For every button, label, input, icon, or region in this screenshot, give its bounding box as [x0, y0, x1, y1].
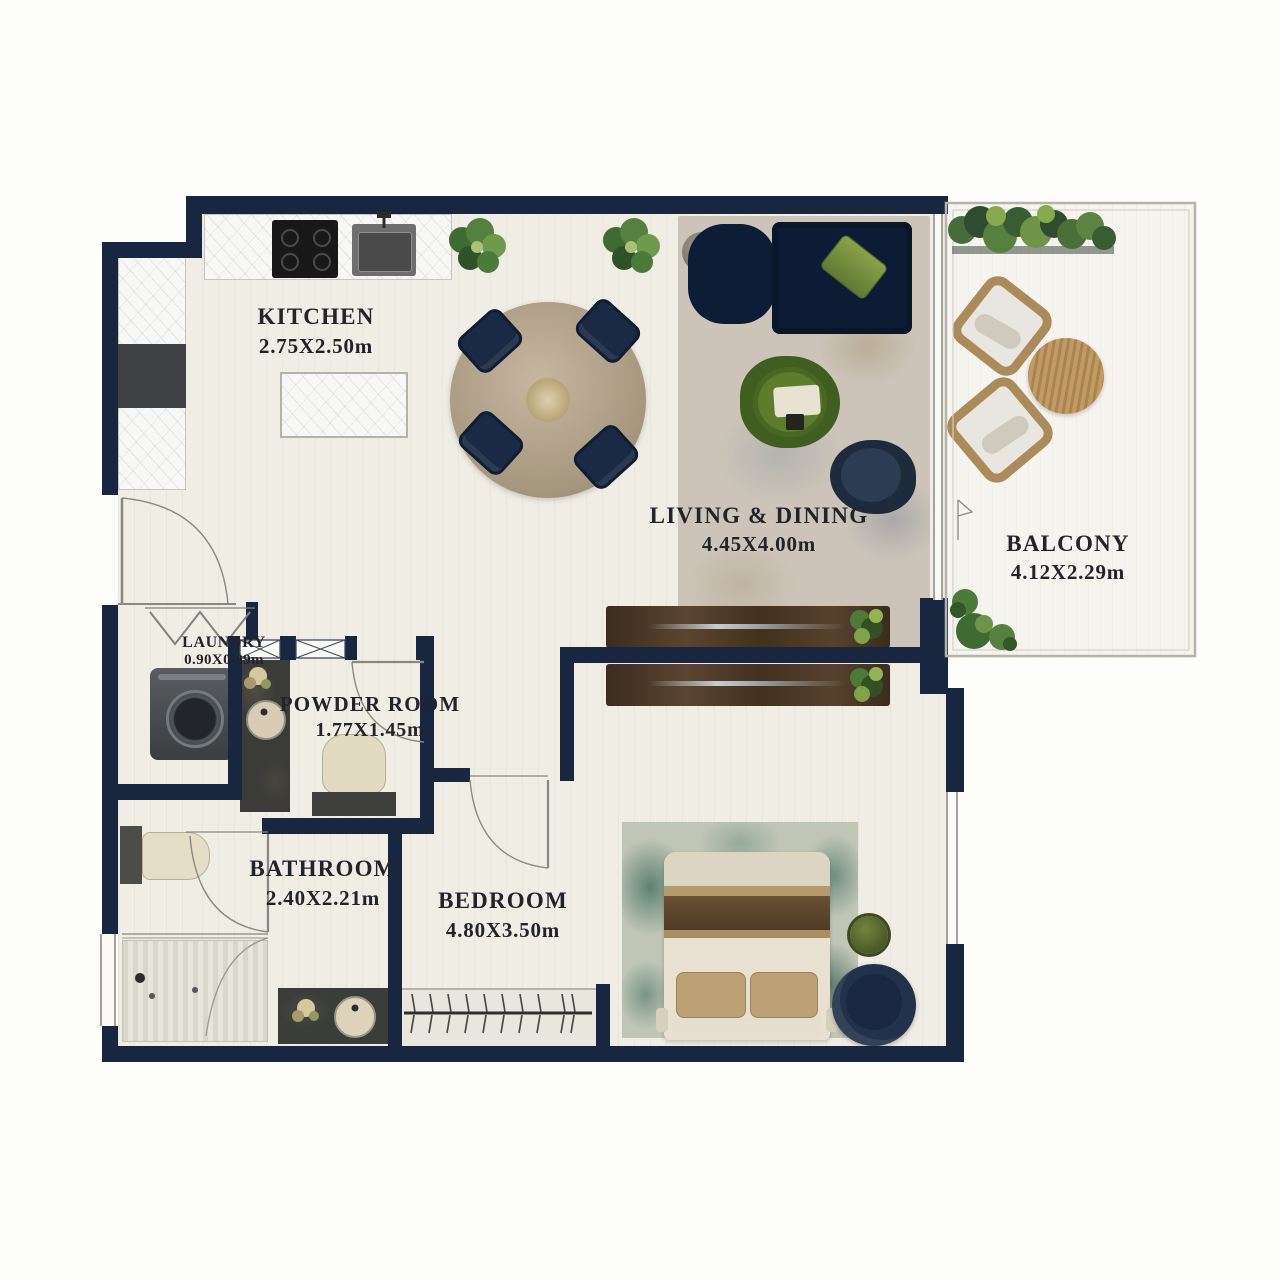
outdoor-table: [1028, 338, 1104, 414]
bed-pillow: [676, 972, 746, 1018]
wall-left-mid: [102, 605, 118, 934]
bed-foot: [672, 1018, 822, 1036]
toilet-tank: [120, 826, 142, 884]
bed-runner-edge: [664, 886, 830, 896]
window-bedroom: [946, 792, 958, 944]
room-label-kitchen: KITCHEN: [257, 304, 374, 330]
bedside-table: [850, 916, 888, 954]
tray-item: [786, 414, 804, 430]
console-table: [606, 606, 890, 648]
room-dims-laundry: 0.90X0.89m: [184, 652, 264, 669]
room-label-powder: POWDER ROOM: [280, 692, 461, 717]
bed: [664, 852, 830, 1040]
wall-living-bedroom: [560, 647, 924, 663]
swivel-seat: [846, 974, 902, 1030]
washing-machine: [150, 668, 234, 760]
fridge: [118, 344, 186, 408]
wall-bathroom-right: [388, 818, 402, 1046]
wall-bottom: [102, 1046, 964, 1062]
washer-panel: [158, 674, 226, 680]
bed-head: [664, 852, 830, 886]
kitchen-island: [280, 372, 408, 438]
bed-leg: [656, 1008, 668, 1032]
room-label-balcony: BALCONY: [1006, 531, 1129, 557]
outdoor-cushion: [971, 310, 1024, 352]
bed-runner: [664, 896, 830, 930]
wall-laundry-bottom: [102, 784, 242, 800]
wall-powder-right: [420, 655, 434, 834]
wall-right-lower: [946, 944, 964, 1062]
sofa-chaise: [688, 224, 776, 324]
wardrobe: [402, 988, 596, 1046]
room-dims-powder: 1.77X1.45m: [315, 719, 424, 742]
wall-corner-living: [920, 598, 948, 694]
wall-top: [186, 196, 948, 214]
room-dims-balcony: 4.12X2.29m: [1011, 560, 1125, 585]
wall-hallway: [560, 647, 574, 781]
console-table: [606, 664, 890, 706]
room-label-living: LIVING & DINING: [650, 503, 869, 529]
room-dims-bathroom: 2.40X2.21m: [266, 886, 380, 911]
washer-drum: [166, 690, 224, 748]
armchair-cushion: [841, 448, 901, 502]
wall-left-upper: [102, 242, 118, 495]
powder-toilet: [322, 734, 386, 794]
floor-plan: KITCHEN 2.75X2.50m LIVING & DINING 4.45X…: [0, 0, 1280, 1280]
swivel-chair: [832, 964, 916, 1046]
window-bathroom: [100, 934, 116, 1026]
powder-toilet-tank: [312, 792, 396, 816]
wall-right-mid: [946, 688, 964, 792]
dining-centerpiece: [526, 378, 570, 422]
bed-runner-edge: [664, 930, 830, 938]
outdoor-cushion: [978, 412, 1032, 458]
sink-basin: [358, 232, 412, 272]
kitchen-sink: [352, 224, 416, 276]
wall-laundry-right: [228, 648, 242, 792]
bed-pillow: [750, 972, 818, 1018]
room-label-bathroom: BATHROOM: [249, 856, 396, 882]
room-dims-living: 4.45X4.00m: [702, 532, 816, 557]
toilet: [142, 832, 210, 880]
room-label-bedroom: BEDROOM: [438, 888, 568, 914]
wall-powder-bottom: [262, 818, 434, 834]
shower: [122, 940, 268, 1042]
room-dims-kitchen: 2.75X2.50m: [259, 334, 373, 359]
coffee-table: [740, 356, 840, 448]
console-handle: [648, 624, 846, 629]
wall-wardrobe-right: [596, 984, 610, 1046]
bathroom-sink: [334, 996, 376, 1038]
cooktop: [272, 220, 338, 278]
room-label-laundry: LAUNDRY: [182, 634, 266, 652]
room-dims-bedroom: 4.80X3.50m: [446, 918, 560, 943]
coffee-table-tray: [773, 384, 821, 417]
console-handle: [648, 681, 846, 686]
window-living-balcony: [933, 214, 943, 600]
